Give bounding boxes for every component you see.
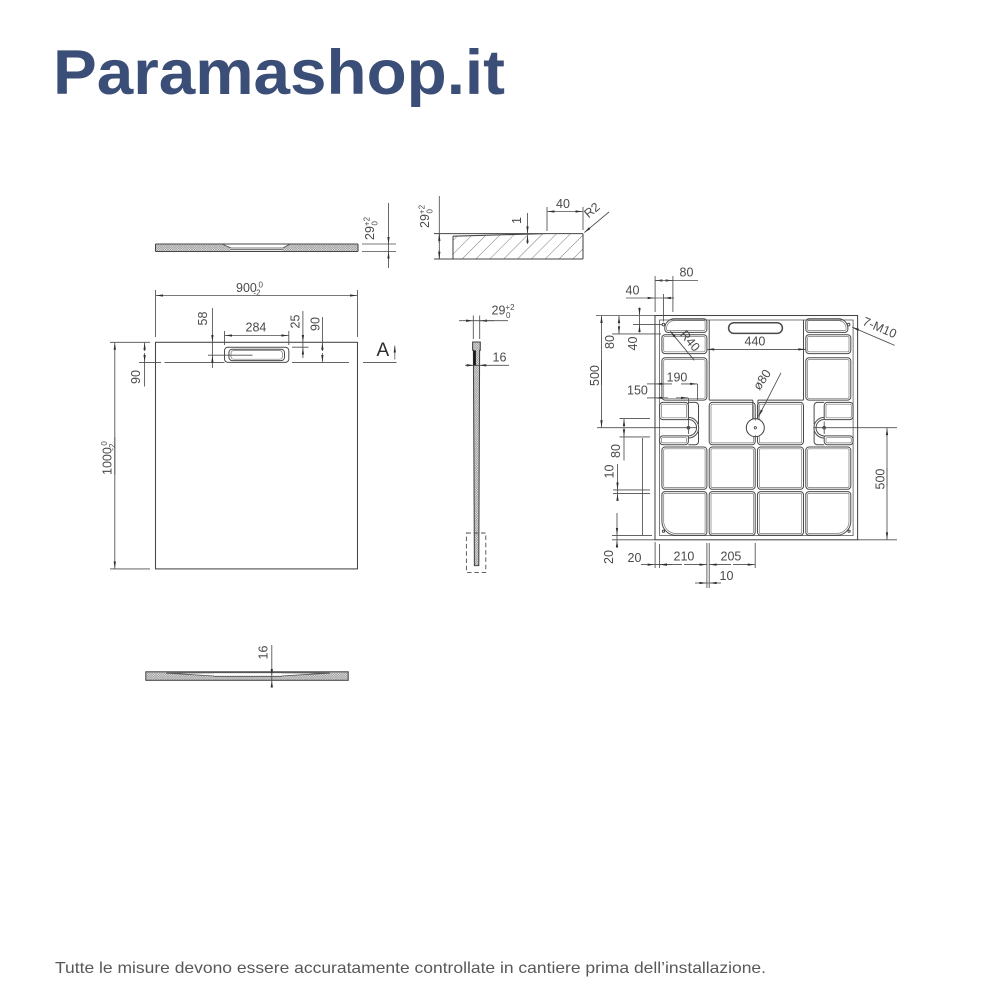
svg-text:500: 500 (874, 469, 888, 490)
svg-text:20: 20 (628, 551, 642, 565)
svg-text:150: 150 (627, 384, 648, 398)
svg-text:284: 284 (246, 321, 267, 335)
svg-text:58: 58 (196, 312, 210, 326)
svg-text:10: 10 (720, 569, 734, 583)
svg-text:80: 80 (609, 444, 623, 458)
svg-text:190: 190 (667, 371, 688, 385)
svg-text:Paramashop.it: Paramashop.it (53, 38, 505, 108)
svg-text:10: 10 (603, 465, 617, 479)
svg-text:A: A (377, 340, 390, 361)
svg-text:205: 205 (721, 550, 742, 564)
svg-text:500: 500 (588, 365, 602, 386)
svg-text:1: 1 (510, 217, 524, 224)
svg-text:80: 80 (603, 335, 617, 349)
svg-text:1000 0-2: 1000 0-2 (100, 441, 117, 475)
svg-text:90: 90 (309, 317, 323, 331)
svg-text:20: 20 (602, 550, 616, 564)
svg-text:900 0-2: 900 0-2 (236, 281, 263, 298)
svg-text:25: 25 (289, 315, 303, 329)
svg-text:40: 40 (626, 284, 640, 298)
svg-text:80: 80 (680, 266, 694, 280)
svg-text:210: 210 (674, 550, 695, 564)
svg-text:90: 90 (129, 370, 143, 384)
svg-text:40: 40 (626, 337, 640, 351)
svg-text:Tutte le misure devono essere: Tutte le misure devono essere accuratame… (55, 960, 766, 977)
svg-text:16: 16 (257, 646, 271, 660)
svg-text:16: 16 (493, 351, 507, 365)
svg-text:40: 40 (556, 197, 570, 211)
svg-text:440: 440 (745, 335, 766, 349)
